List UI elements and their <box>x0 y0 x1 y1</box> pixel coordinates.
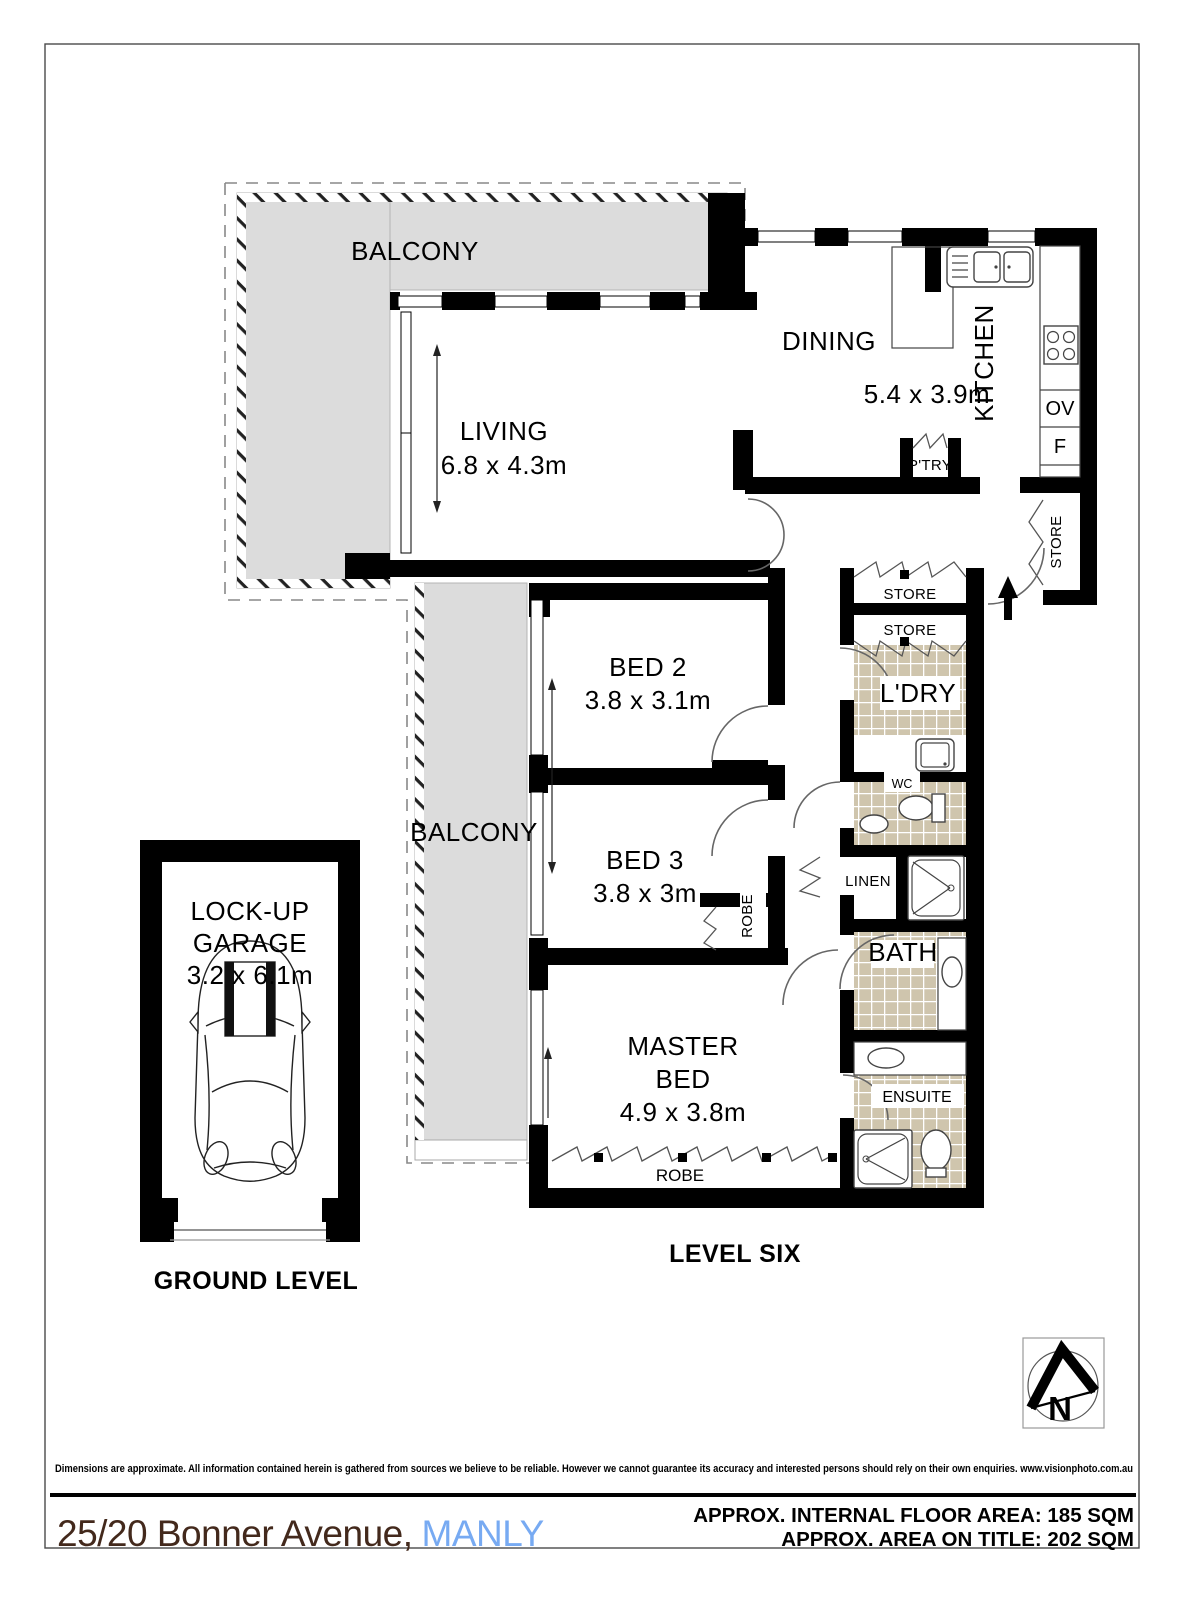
robe-bed3-label: ROBE <box>739 894 756 938</box>
laundry-label: L'DRY <box>880 678 956 708</box>
north-letter: N <box>1048 1390 1072 1427</box>
master-label-line2: BED <box>656 1064 711 1094</box>
footer-divider <box>50 1493 1136 1497</box>
ensuite-shower-icon <box>854 1130 912 1188</box>
store1-label: STORE <box>884 586 937 603</box>
wc-label: WC <box>892 777 913 791</box>
bed2-dims: 3.8 x 3.1m <box>585 685 711 715</box>
ensuite-toilet-icon <box>921 1130 951 1177</box>
address-line: 25/20 Bonner Avenue,MANLY <box>57 1513 544 1554</box>
area-title: APPROX. AREA ON TITLE: 202 SQM <box>781 1528 1134 1551</box>
master-label-line1: MASTER <box>627 1031 738 1061</box>
bath-label: BATH <box>868 937 937 967</box>
ground-level-label: GROUND LEVEL <box>154 1267 359 1295</box>
balcony-side-label: BALCONY <box>410 817 538 847</box>
master-window <box>531 990 543 1125</box>
ensuite-basin-icon <box>868 1048 904 1068</box>
living-label: LIVING <box>460 416 548 446</box>
balcony-top-label: BALCONY <box>351 236 479 266</box>
fridge-label: F <box>1054 436 1066 458</box>
garage-label-line1: LOCK-UP <box>190 896 309 926</box>
living-dims: 6.8 x 4.3m <box>441 450 567 480</box>
pantry-label: P'TRY <box>908 457 952 474</box>
floor-plan-page: BALCONY LIVING 6.8 x 4.3m DINING 5.4 x 3… <box>0 0 1184 1600</box>
laundry-tub-icon <box>916 739 954 771</box>
address-suburb: MANLY <box>422 1513 544 1554</box>
disclaimer-text: Dimensions are approximate. All informat… <box>55 1463 1133 1475</box>
ensuite-label: ENSUITE <box>882 1089 951 1106</box>
garage-label-line2: GARAGE <box>193 928 307 958</box>
oven-label: OV <box>1046 398 1076 420</box>
dining-label: DINING <box>782 326 876 356</box>
address-street: 25/20 Bonner Avenue, <box>57 1513 413 1554</box>
bed3-window <box>531 792 543 935</box>
bed2-window <box>531 600 543 755</box>
area-internal: APPROX. INTERNAL FLOOR AREA: 185 SQM <box>693 1504 1134 1527</box>
kitchen-sink-icon <box>947 247 1033 287</box>
master-dims: 4.9 x 3.8m <box>620 1097 746 1127</box>
robe-master-label: ROBE <box>656 1166 704 1185</box>
store2-label: STORE <box>884 622 937 639</box>
wc-toilet-icon <box>899 794 945 822</box>
bath-basin-icon <box>942 957 962 987</box>
linen-label: LINEN <box>845 873 891 890</box>
north-compass: N <box>1023 1338 1104 1428</box>
bed2-label: BED 2 <box>609 652 687 682</box>
balcony-hatch-top <box>237 193 727 202</box>
garage-dims: 3.2 x 6.1m <box>187 960 313 990</box>
bed3-dims: 3.8 x 3m <box>593 878 697 908</box>
kitchen-label: KITCHEN <box>969 304 999 422</box>
cooktop-icon <box>1044 326 1078 364</box>
wc-basin-icon <box>860 815 888 833</box>
bath-shower-icon <box>908 856 964 920</box>
level-six-label: LEVEL SIX <box>669 1240 801 1268</box>
store-entry-label: STORE <box>1048 516 1065 569</box>
floor-plan-drawing: BALCONY LIVING 6.8 x 4.3m DINING 5.4 x 3… <box>0 0 1184 1600</box>
bed3-label: BED 3 <box>606 845 684 875</box>
